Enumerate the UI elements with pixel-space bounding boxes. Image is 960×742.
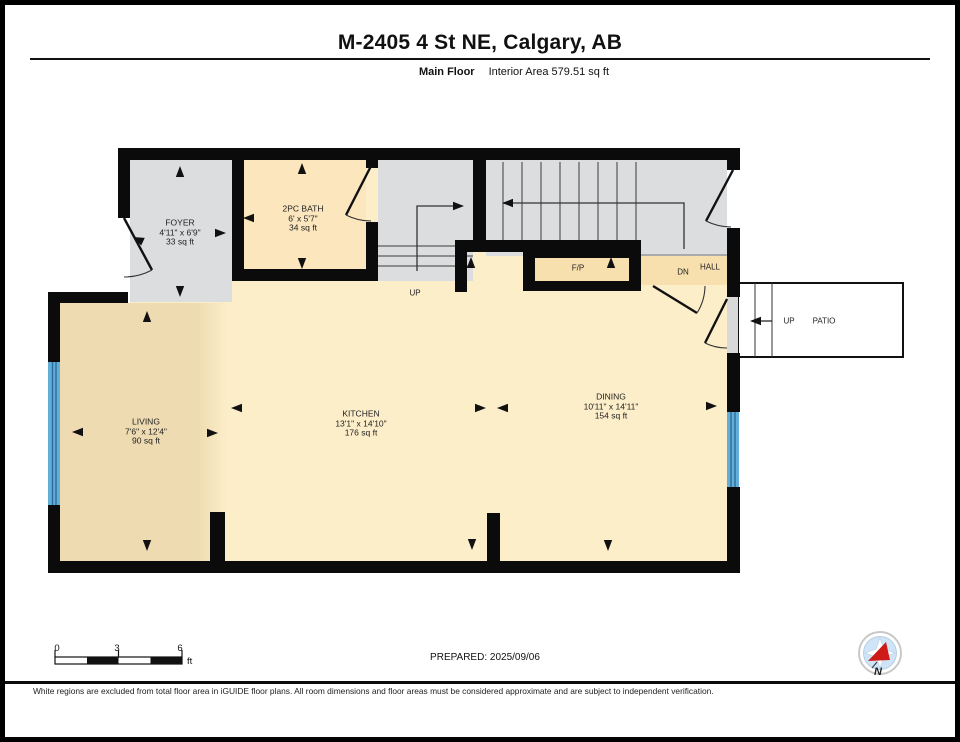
room-label-bath: 2PC BATH 6' x 5'7" 34 sq ft bbox=[283, 205, 324, 234]
scale-tick-3: 3 bbox=[114, 643, 119, 654]
fireplace-label: F/P bbox=[572, 264, 584, 273]
room-label-dining: DINING 10'11" x 14'11" 154 sq ft bbox=[584, 393, 639, 422]
floor-plan-svg bbox=[0, 0, 960, 742]
scale-tick-0: 0 bbox=[54, 643, 59, 654]
stairs-up-label: UP bbox=[409, 289, 420, 298]
patio-up-label: UP bbox=[783, 317, 794, 326]
hall-label: HALL bbox=[700, 263, 720, 272]
patio-door-sill bbox=[727, 297, 738, 353]
header-divider bbox=[30, 58, 930, 60]
footer-disclaimer: White regions are excluded from total fl… bbox=[33, 686, 714, 696]
patio-label: PATIO bbox=[813, 317, 836, 326]
floorplan-page: M-2405 4 St NE, Calgary, AB Main Floor I… bbox=[0, 0, 960, 742]
room-label-living: LIVING 7'6" x 12'4" 90 sq ft bbox=[125, 418, 167, 447]
room-area: 176 sq ft bbox=[335, 429, 386, 439]
room-area: 90 sq ft bbox=[125, 437, 167, 447]
room-area: 33 sq ft bbox=[159, 238, 200, 248]
footer-divider bbox=[4, 681, 956, 684]
living-window bbox=[48, 362, 60, 505]
north-label: N bbox=[874, 666, 882, 678]
scale-tick-6: 6 bbox=[177, 643, 182, 654]
down-label: DN bbox=[677, 268, 689, 277]
room-area: 34 sq ft bbox=[283, 224, 324, 234]
room-area: 154 sq ft bbox=[584, 412, 639, 422]
scale-unit-label: ft bbox=[187, 656, 192, 667]
room-label-kitchen: KITCHEN 13'1" x 14'10" 176 sq ft bbox=[335, 410, 386, 439]
dining-window bbox=[727, 412, 739, 487]
room-label-foyer: FOYER 4'11" x 6'9" 33 sq ft bbox=[159, 219, 200, 248]
prepared-date-label: PREPARED: 2025/09/06 bbox=[430, 652, 540, 663]
